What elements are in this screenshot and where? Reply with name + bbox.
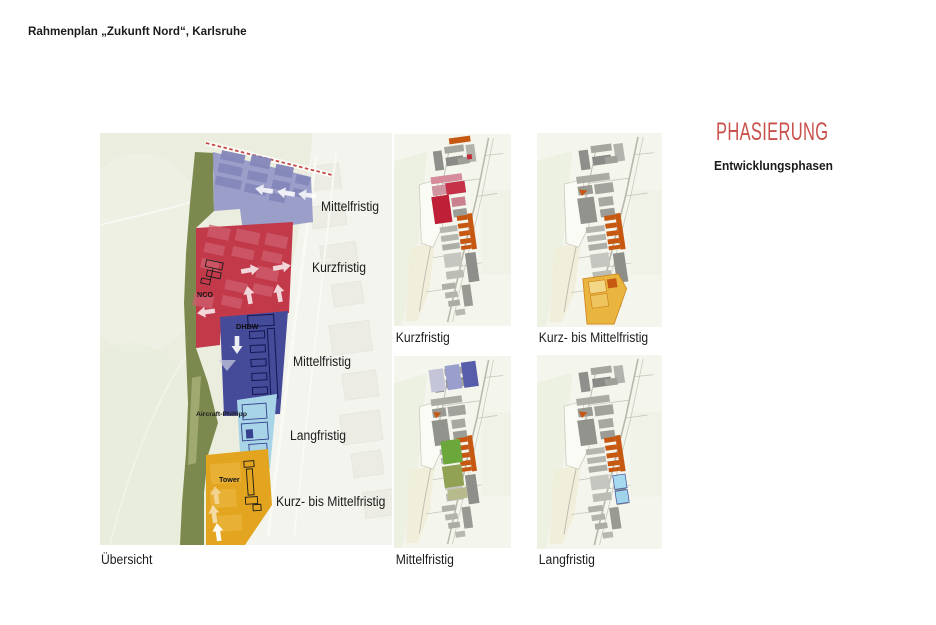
- phase-map-label: Kurzfristig: [394, 330, 502, 345]
- zone-label-kurzfristig: Kurzfristig: [312, 260, 366, 275]
- phase-map-mittelfristig-graphic: [394, 355, 511, 549]
- phase-map-kurz-bis-mittelfristig-graphic: [537, 133, 662, 327]
- overview-map-graphic: NCO DHBW: [100, 133, 392, 545]
- phase-map-langfristig: Langfristig: [537, 355, 665, 567]
- nco-label: NCO: [197, 290, 213, 299]
- phase-map-kurzfristig: Kurzfristig: [394, 133, 514, 345]
- phase-map-label: Kurz- bis Mittelfristig: [537, 330, 652, 345]
- document-title: Rahmenplan „Zukunft Nord“, Karlsruhe: [28, 24, 247, 38]
- phase-map-mittelfristig: Mittelfristig: [394, 355, 514, 567]
- slide: Rahmenplan „Zukunft Nord“, Karlsruhe: [0, 0, 936, 625]
- dhbw-label: DHBW: [236, 322, 259, 331]
- overview-caption: Übersicht: [101, 552, 152, 567]
- phase-map-kurzfristig-graphic: [394, 133, 511, 327]
- aircraft-phillipp-label: Aircraft-Phillipp: [196, 411, 247, 418]
- section-title: PHASIERUNG: [716, 118, 828, 147]
- phase-map-label: Mittelfristig: [394, 552, 502, 567]
- phase-map-kurz-bis-mittelfristig: Kurz- bis Mittelfristig: [537, 133, 665, 345]
- phase-map-label: Langfristig: [537, 552, 652, 567]
- zone-label-langfristig: Langfristig: [290, 428, 346, 443]
- phase-map-langfristig-graphic: [537, 355, 662, 549]
- zone-label-mittelfristig-north: Mittelfristig: [321, 199, 379, 214]
- zone-label-mittelfristig-south: Mittelfristig: [293, 354, 351, 369]
- overview-map: NCO DHBW: [100, 133, 392, 577]
- tower-label: Tower: [219, 475, 240, 484]
- section-subtitle: Entwicklungsphasen: [714, 158, 833, 173]
- zone-label-kurz-bis-mittelfristig: Kurz- bis Mittelfristig: [276, 494, 385, 509]
